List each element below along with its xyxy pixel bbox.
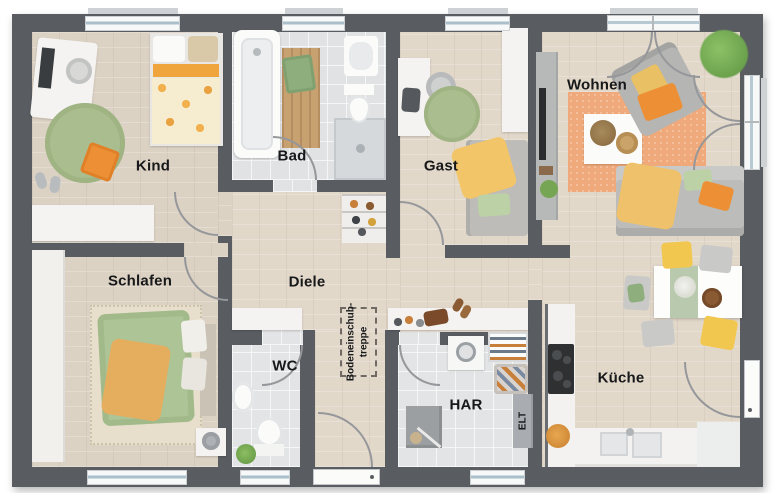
wohnen-right-door-divider (745, 121, 759, 123)
wc-label: WC (272, 358, 297, 375)
floor-plan: Kind Bad Gast Wohnen Schlafen Diele WC H… (0, 0, 775, 493)
kind-desk-chair (66, 58, 92, 84)
attic-hatch-label: Bodeneinschub- treppe (346, 303, 371, 381)
gast-wardrobe (502, 28, 528, 132)
wc-basin (232, 382, 254, 412)
table-plate (702, 288, 722, 308)
gast-door-opening (400, 245, 445, 258)
elt-label: ELT (518, 412, 529, 430)
schlafen-label: Schlafen (108, 273, 172, 290)
schlafen-bed-blanket (100, 338, 171, 422)
shower-drain (356, 144, 365, 153)
wc-window (240, 470, 290, 485)
kitchen-corner-cabinet (697, 422, 740, 467)
schlafen-pillow-2 (181, 357, 208, 391)
kind-bed-duvet (152, 78, 220, 144)
schlafen-window (87, 470, 187, 485)
schlafen-wardrobe (32, 250, 65, 462)
washing-machine-door (456, 342, 476, 362)
wall-stub-gast-wohnen (528, 245, 570, 258)
drying-rack (488, 332, 528, 362)
gast-label: Gast (424, 158, 458, 175)
coffee-table-plant (590, 120, 616, 146)
tv-screen (539, 88, 546, 160)
chair-yellow-top (661, 241, 693, 269)
kind-label: Kind (136, 158, 170, 175)
chair-gray-top (699, 244, 734, 273)
attic-hatch-label-line1: Bodeneinschub- (346, 303, 359, 381)
schlafen-lamp (202, 432, 220, 450)
bad-label: Bad (278, 148, 307, 165)
kitchen-sink-2 (632, 432, 662, 458)
kitchen-sink-1 (600, 432, 628, 456)
wohnen-right-door-sill (761, 78, 767, 167)
har-window (470, 470, 525, 485)
shoes-on-rack (346, 198, 382, 238)
wohnen-top-door-divider (652, 16, 654, 30)
kitchen-faucet (626, 428, 634, 436)
chair-yellow-bottom (700, 315, 739, 350)
bath-towel (282, 54, 317, 94)
kitchen-terrace-door (744, 360, 760, 418)
schlafen-pillow-1 (181, 319, 208, 353)
kind-bed-pillow-2 (188, 36, 218, 62)
toilet-bad-tank (344, 84, 374, 95)
wohnen-top-door-sill (610, 8, 698, 14)
attic-hatch-label-line2: treppe (358, 303, 371, 381)
kind-window (85, 16, 180, 31)
kind-bed-band (153, 64, 219, 77)
wc-toilet-bowl (256, 418, 282, 446)
gast-laptop (401, 87, 421, 112)
schlafen-door-opening (184, 243, 228, 257)
gast-rug (424, 86, 480, 142)
table-flowers (674, 276, 696, 298)
bad-window-sill (285, 8, 343, 14)
bench-shoes (392, 314, 428, 330)
washbasin-bowl (349, 42, 373, 70)
cooktop (548, 344, 574, 394)
kind-bed-pillow-1 (153, 36, 185, 62)
chair-gray-bottom (641, 318, 676, 347)
har-label: HAR (449, 397, 482, 414)
bathtub-drain (253, 48, 261, 56)
gast-window (445, 16, 510, 31)
mop-bucket (410, 432, 422, 444)
tv-unit-plant (540, 180, 558, 198)
kitchen-door-handle (748, 408, 752, 412)
diele-label: Diele (289, 274, 326, 291)
har-door-opening (399, 332, 440, 345)
diele-bench-left (232, 308, 302, 330)
chair-left-napkin (627, 283, 645, 303)
outer-walls: Kind Bad Gast Wohnen Schlafen Diele WC H… (12, 14, 763, 487)
bad-door-opening (273, 180, 317, 192)
dining-table (654, 266, 742, 318)
coffee-table-bowl (616, 132, 638, 154)
gast-sofa-pillow (477, 193, 510, 217)
gast-window-sill (448, 8, 508, 14)
tv-unit-books (539, 166, 553, 175)
sofa-throw (615, 161, 683, 230)
wohnen-plant (700, 30, 748, 78)
wc-plant (236, 444, 256, 464)
entrance-door-handle (370, 475, 374, 479)
kind-window-sill (88, 8, 178, 14)
bad-window (282, 16, 345, 31)
wohnen-label: Wohnen (567, 77, 627, 94)
kind-sideboard (32, 205, 154, 241)
passage-to-kitchen (528, 258, 542, 300)
kueche-label: Küche (598, 370, 645, 387)
laundry-basket (494, 364, 528, 394)
wc-door-opening (262, 330, 303, 345)
kind-door-opening (218, 192, 232, 236)
fruit-basket (546, 424, 570, 448)
wc-toilet-tank (254, 444, 284, 456)
